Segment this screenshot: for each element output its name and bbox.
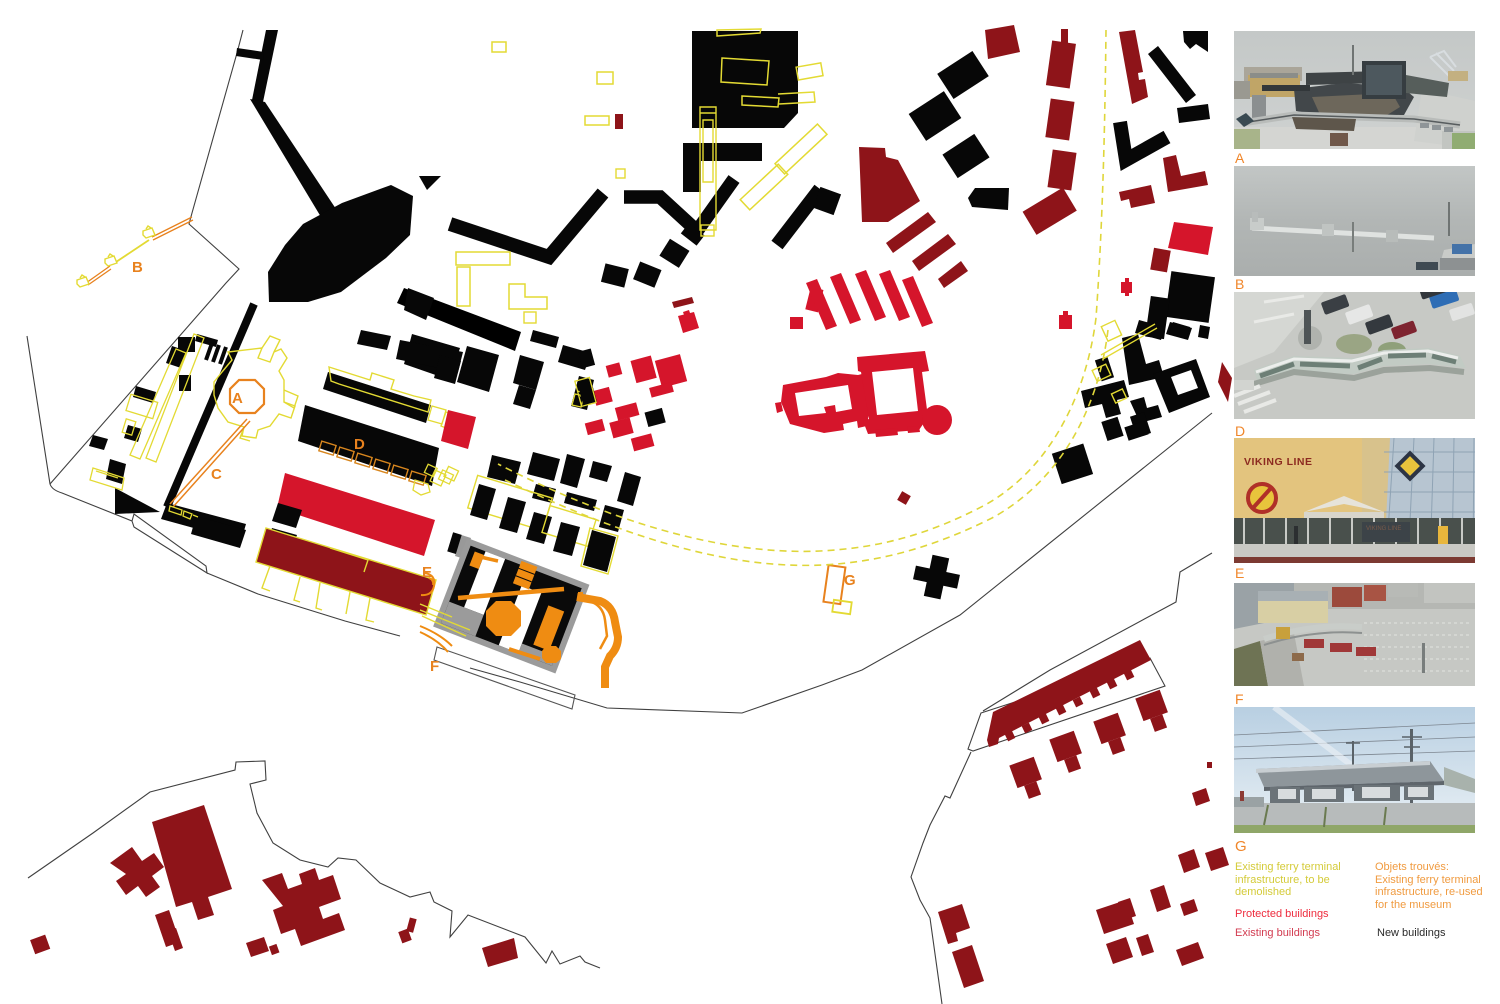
svg-text:C: C: [211, 466, 222, 483]
svg-text:VIKING LINE: VIKING LINE: [1366, 526, 1401, 532]
svg-text:B: B: [132, 259, 143, 276]
svg-text:F: F: [430, 658, 439, 675]
svg-text:G: G: [844, 572, 856, 589]
svg-text:A: A: [232, 390, 243, 407]
svg-text:E: E: [422, 564, 432, 581]
svg-text:VIKING LINE: VIKING LINE: [1244, 456, 1313, 468]
svg-text:D: D: [354, 436, 365, 453]
